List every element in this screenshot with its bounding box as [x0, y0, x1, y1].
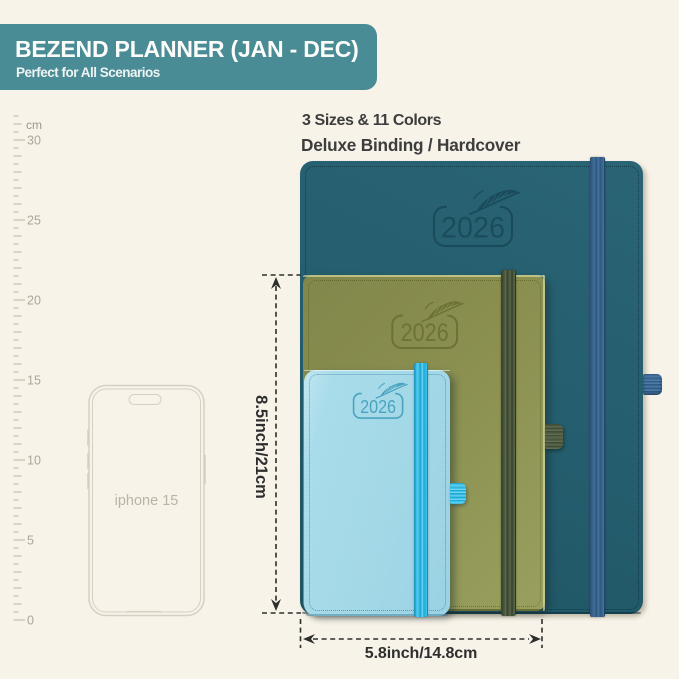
svg-text:5.8inch/14.8cm: 5.8inch/14.8cm: [365, 645, 477, 662]
svg-text:8.5inch/21cm: 8.5inch/21cm: [252, 395, 270, 499]
